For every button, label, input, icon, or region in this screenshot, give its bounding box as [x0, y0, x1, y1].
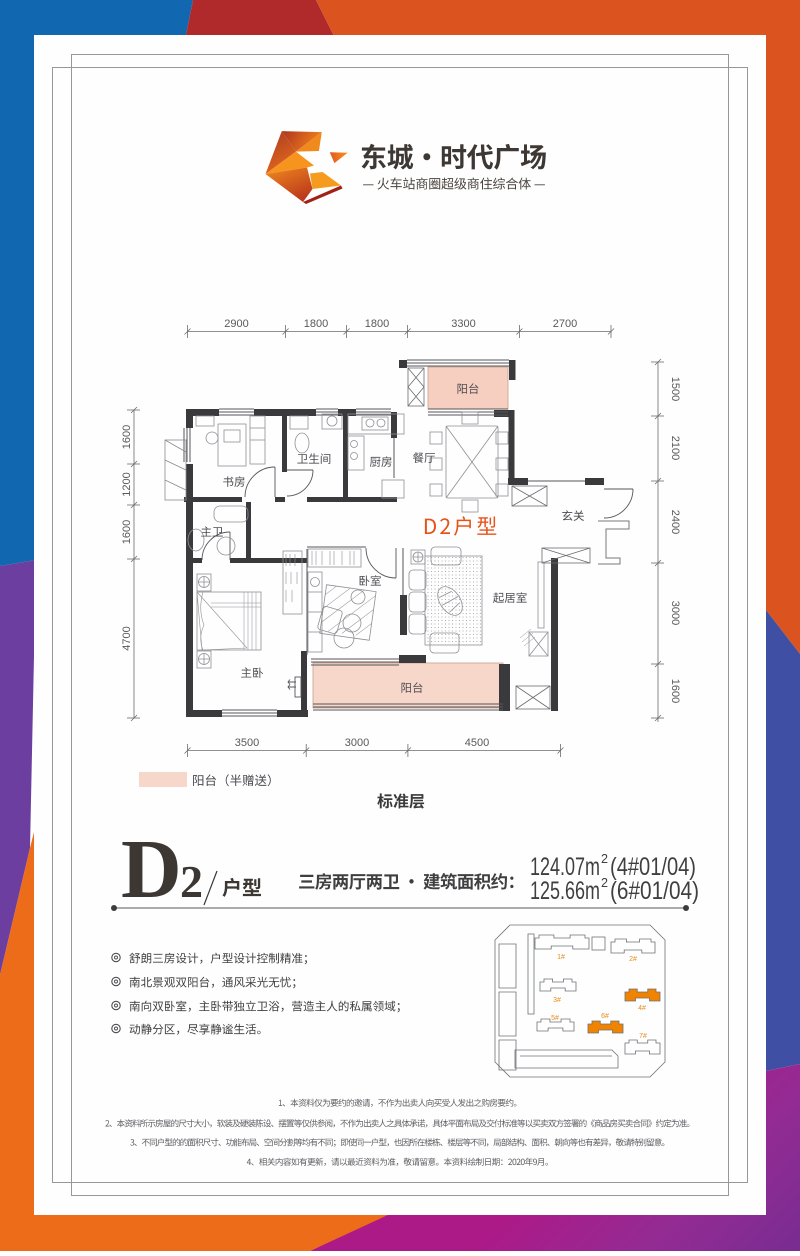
svg-text:7#: 7#: [639, 1033, 647, 1040]
svg-text:3000: 3000: [669, 601, 681, 625]
svg-text:1600: 1600: [121, 520, 133, 544]
svg-text:(6#01/04): (6#01/04): [610, 877, 699, 905]
svg-text:2900: 2900: [224, 318, 248, 330]
svg-text:1200: 1200: [121, 472, 133, 496]
svg-text:2: 2: [601, 875, 608, 890]
svg-text:4700: 4700: [121, 626, 133, 650]
svg-text:1800: 1800: [365, 318, 389, 330]
svg-text:125.66m: 125.66m: [530, 877, 600, 905]
svg-text:1600: 1600: [121, 425, 133, 449]
svg-text:3500: 3500: [235, 737, 259, 749]
svg-text:3#: 3#: [553, 997, 561, 1004]
svg-text:2: 2: [180, 856, 203, 907]
svg-text:2100: 2100: [669, 436, 681, 460]
svg-text:4500: 4500: [465, 737, 489, 749]
svg-text:2700: 2700: [553, 318, 577, 330]
svg-text:1#: 1#: [557, 954, 565, 961]
svg-text:1600: 1600: [669, 679, 681, 703]
svg-text:5#: 5#: [551, 1015, 559, 1022]
svg-text:2400: 2400: [669, 510, 681, 534]
svg-text:3300: 3300: [451, 318, 475, 330]
svg-text:2: 2: [601, 851, 608, 866]
svg-text:4#: 4#: [638, 1005, 646, 1012]
svg-text:1500: 1500: [669, 377, 681, 401]
svg-text:6#: 6#: [601, 1013, 609, 1020]
svg-text:3000: 3000: [345, 737, 369, 749]
svg-text:1800: 1800: [304, 318, 328, 330]
svg-text:2#: 2#: [629, 956, 637, 963]
svg-text:D: D: [121, 823, 182, 916]
